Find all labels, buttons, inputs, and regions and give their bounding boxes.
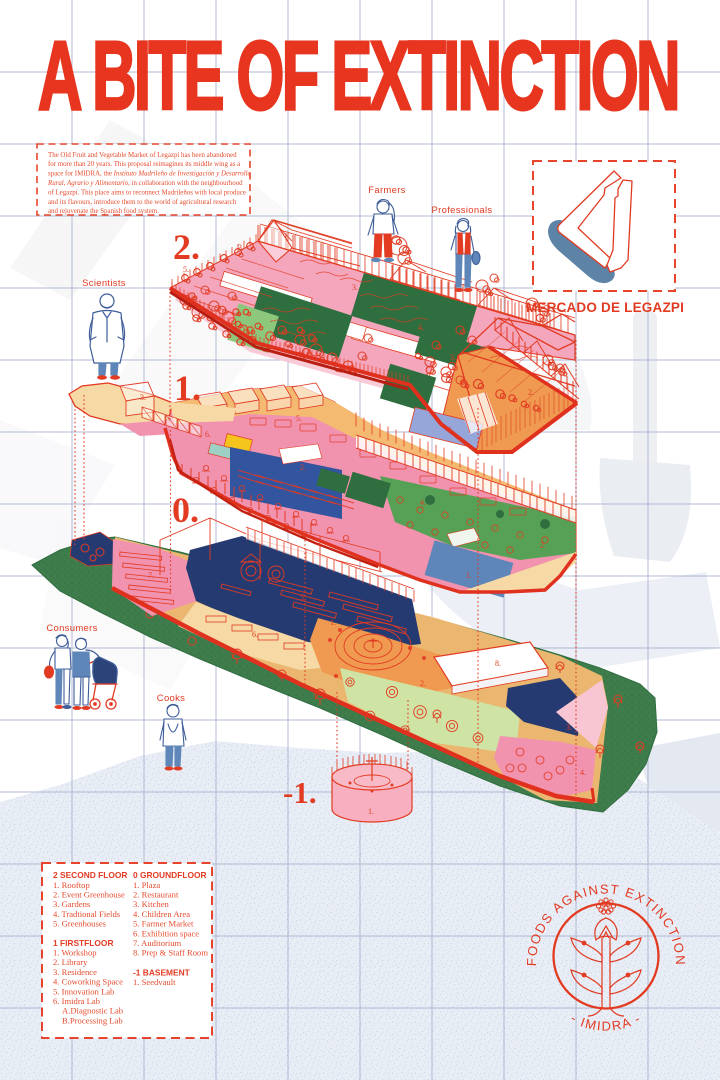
svg-text:3.: 3.	[450, 353, 456, 362]
svg-text:1. Seedvault: 1. Seedvault	[133, 977, 176, 987]
svg-text:4.: 4.	[420, 498, 426, 507]
svg-text:3.: 3.	[140, 393, 146, 402]
svg-text:space for IMIDRA, the Institut: space for IMIDRA, the Instituto Madrileñ…	[48, 171, 252, 178]
svg-text:6.: 6.	[252, 630, 258, 639]
svg-text:2. Event Greenhouse: 2. Event Greenhouse	[53, 890, 125, 900]
svg-text:0 GROUNDFLOOR: 0 GROUNDFLOOR	[133, 870, 207, 880]
svg-text:5. Greenhouses: 5. Greenhouses	[53, 919, 107, 929]
svg-text:-1.: -1.	[283, 775, 317, 810]
svg-text:1.: 1.	[448, 425, 454, 434]
svg-text:MERCADO DE LEGAZPI: MERCADO DE LEGAZPI	[526, 300, 684, 315]
svg-text:2.: 2.	[173, 227, 200, 267]
svg-text:A BITE OF EXTINCTION: A BITE OF EXTINCTION	[38, 23, 678, 131]
svg-text:1.: 1.	[466, 571, 472, 580]
svg-text:3. Kitchen: 3. Kitchen	[133, 899, 170, 909]
svg-text:2. Library: 2. Library	[53, 957, 88, 967]
svg-text:2.: 2.	[420, 679, 426, 688]
svg-text:5. Innovation Lab: 5. Innovation Lab	[53, 986, 114, 996]
svg-text:Professionals: Professionals	[432, 205, 493, 216]
svg-text:5. Farmer Market: 5. Farmer Market	[133, 919, 194, 929]
svg-text:1.: 1.	[330, 618, 336, 627]
svg-text:3.: 3.	[566, 723, 572, 732]
svg-text:A.Diagnostic Lab: A.Diagnostic Lab	[62, 1006, 123, 1016]
svg-text:8. Prep & Staff Room: 8. Prep & Staff Room	[133, 948, 208, 958]
svg-text:4. Children Area: 4. Children Area	[133, 909, 190, 919]
svg-text:4. Tradtional Fields: 4. Tradtional Fields	[53, 909, 121, 919]
svg-text:B.Processing Lab: B.Processing Lab	[62, 1015, 123, 1025]
svg-text:Consumers: Consumers	[46, 623, 97, 634]
svg-text:1.: 1.	[174, 368, 201, 408]
svg-text:0.: 0.	[172, 490, 199, 530]
svg-text:7.: 7.	[148, 571, 154, 580]
svg-text:Rural, Agrario y Alimentario,: Rural, Agrario y Alimentario, in collabo…	[47, 180, 243, 187]
svg-text:6.: 6.	[205, 430, 211, 439]
svg-text:1. Workshop: 1. Workshop	[53, 948, 97, 958]
svg-text:4.: 4.	[580, 768, 586, 777]
svg-text:of Legazpi. This place aims to: of Legazpi. This place aims to reconnect…	[48, 189, 246, 196]
svg-text:4. Coworking Space: 4. Coworking Space	[53, 977, 123, 987]
svg-text:2.: 2.	[300, 463, 306, 472]
svg-text:and rejuvenate the Spanish foo: and rejuvenate the Spanish food system.	[48, 208, 159, 215]
svg-text:5.: 5.	[296, 414, 302, 423]
svg-text:Scientists: Scientists	[82, 278, 126, 289]
svg-text:1 FIRSTFLOOR: 1 FIRSTFLOOR	[53, 938, 114, 948]
svg-text:1. Rooftop: 1. Rooftop	[53, 880, 90, 890]
svg-text:2.: 2.	[540, 541, 546, 550]
svg-text:8.: 8.	[495, 659, 501, 668]
svg-text:2.: 2.	[528, 388, 534, 397]
svg-text:1.: 1.	[368, 807, 374, 816]
svg-text:-1 BASEMENT: -1 BASEMENT	[133, 968, 191, 978]
svg-text:2. Restaurant: 2. Restaurant	[133, 890, 179, 900]
svg-text:6. Imidra Lab: 6. Imidra Lab	[53, 996, 100, 1006]
svg-text:3.: 3.	[352, 283, 358, 292]
svg-text:Cooks: Cooks	[157, 693, 185, 704]
svg-text:The Old Fruit and Vegetable Ma: The Old Fruit and Vegetable Market of Le…	[48, 152, 237, 159]
svg-text:3.: 3.	[238, 243, 244, 252]
svg-text:5.: 5.	[300, 593, 306, 602]
svg-text:for more than 20 years. This p: for more than 20 years. This proposal re…	[48, 161, 240, 168]
svg-text:3. Gardens: 3. Gardens	[53, 899, 91, 909]
svg-text:3. Residence: 3. Residence	[53, 967, 97, 977]
svg-text:4.: 4.	[418, 323, 424, 332]
svg-text:Farmers: Farmers	[368, 185, 405, 196]
svg-text:2 SECOND FLOOR: 2 SECOND FLOOR	[53, 870, 127, 880]
svg-text:6. Exhibition space: 6. Exhibition space	[133, 928, 199, 938]
svg-text:and its flavours, introduce th: and its flavours, introduce them to the …	[48, 199, 237, 206]
svg-text:7. Auditorium: 7. Auditorium	[133, 938, 182, 948]
svg-text:1. Plaza: 1. Plaza	[133, 880, 160, 890]
